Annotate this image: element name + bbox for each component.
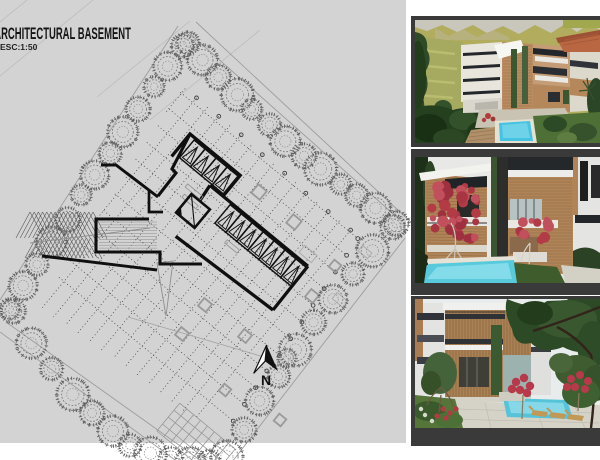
svg-text:N: N	[261, 372, 271, 388]
svg-text:ESC:1:50: ESC:1:50	[0, 42, 38, 52]
svg-text:ARCHITECTURAL BASEMENT: ARCHITECTURAL BASEMENT	[0, 24, 131, 42]
